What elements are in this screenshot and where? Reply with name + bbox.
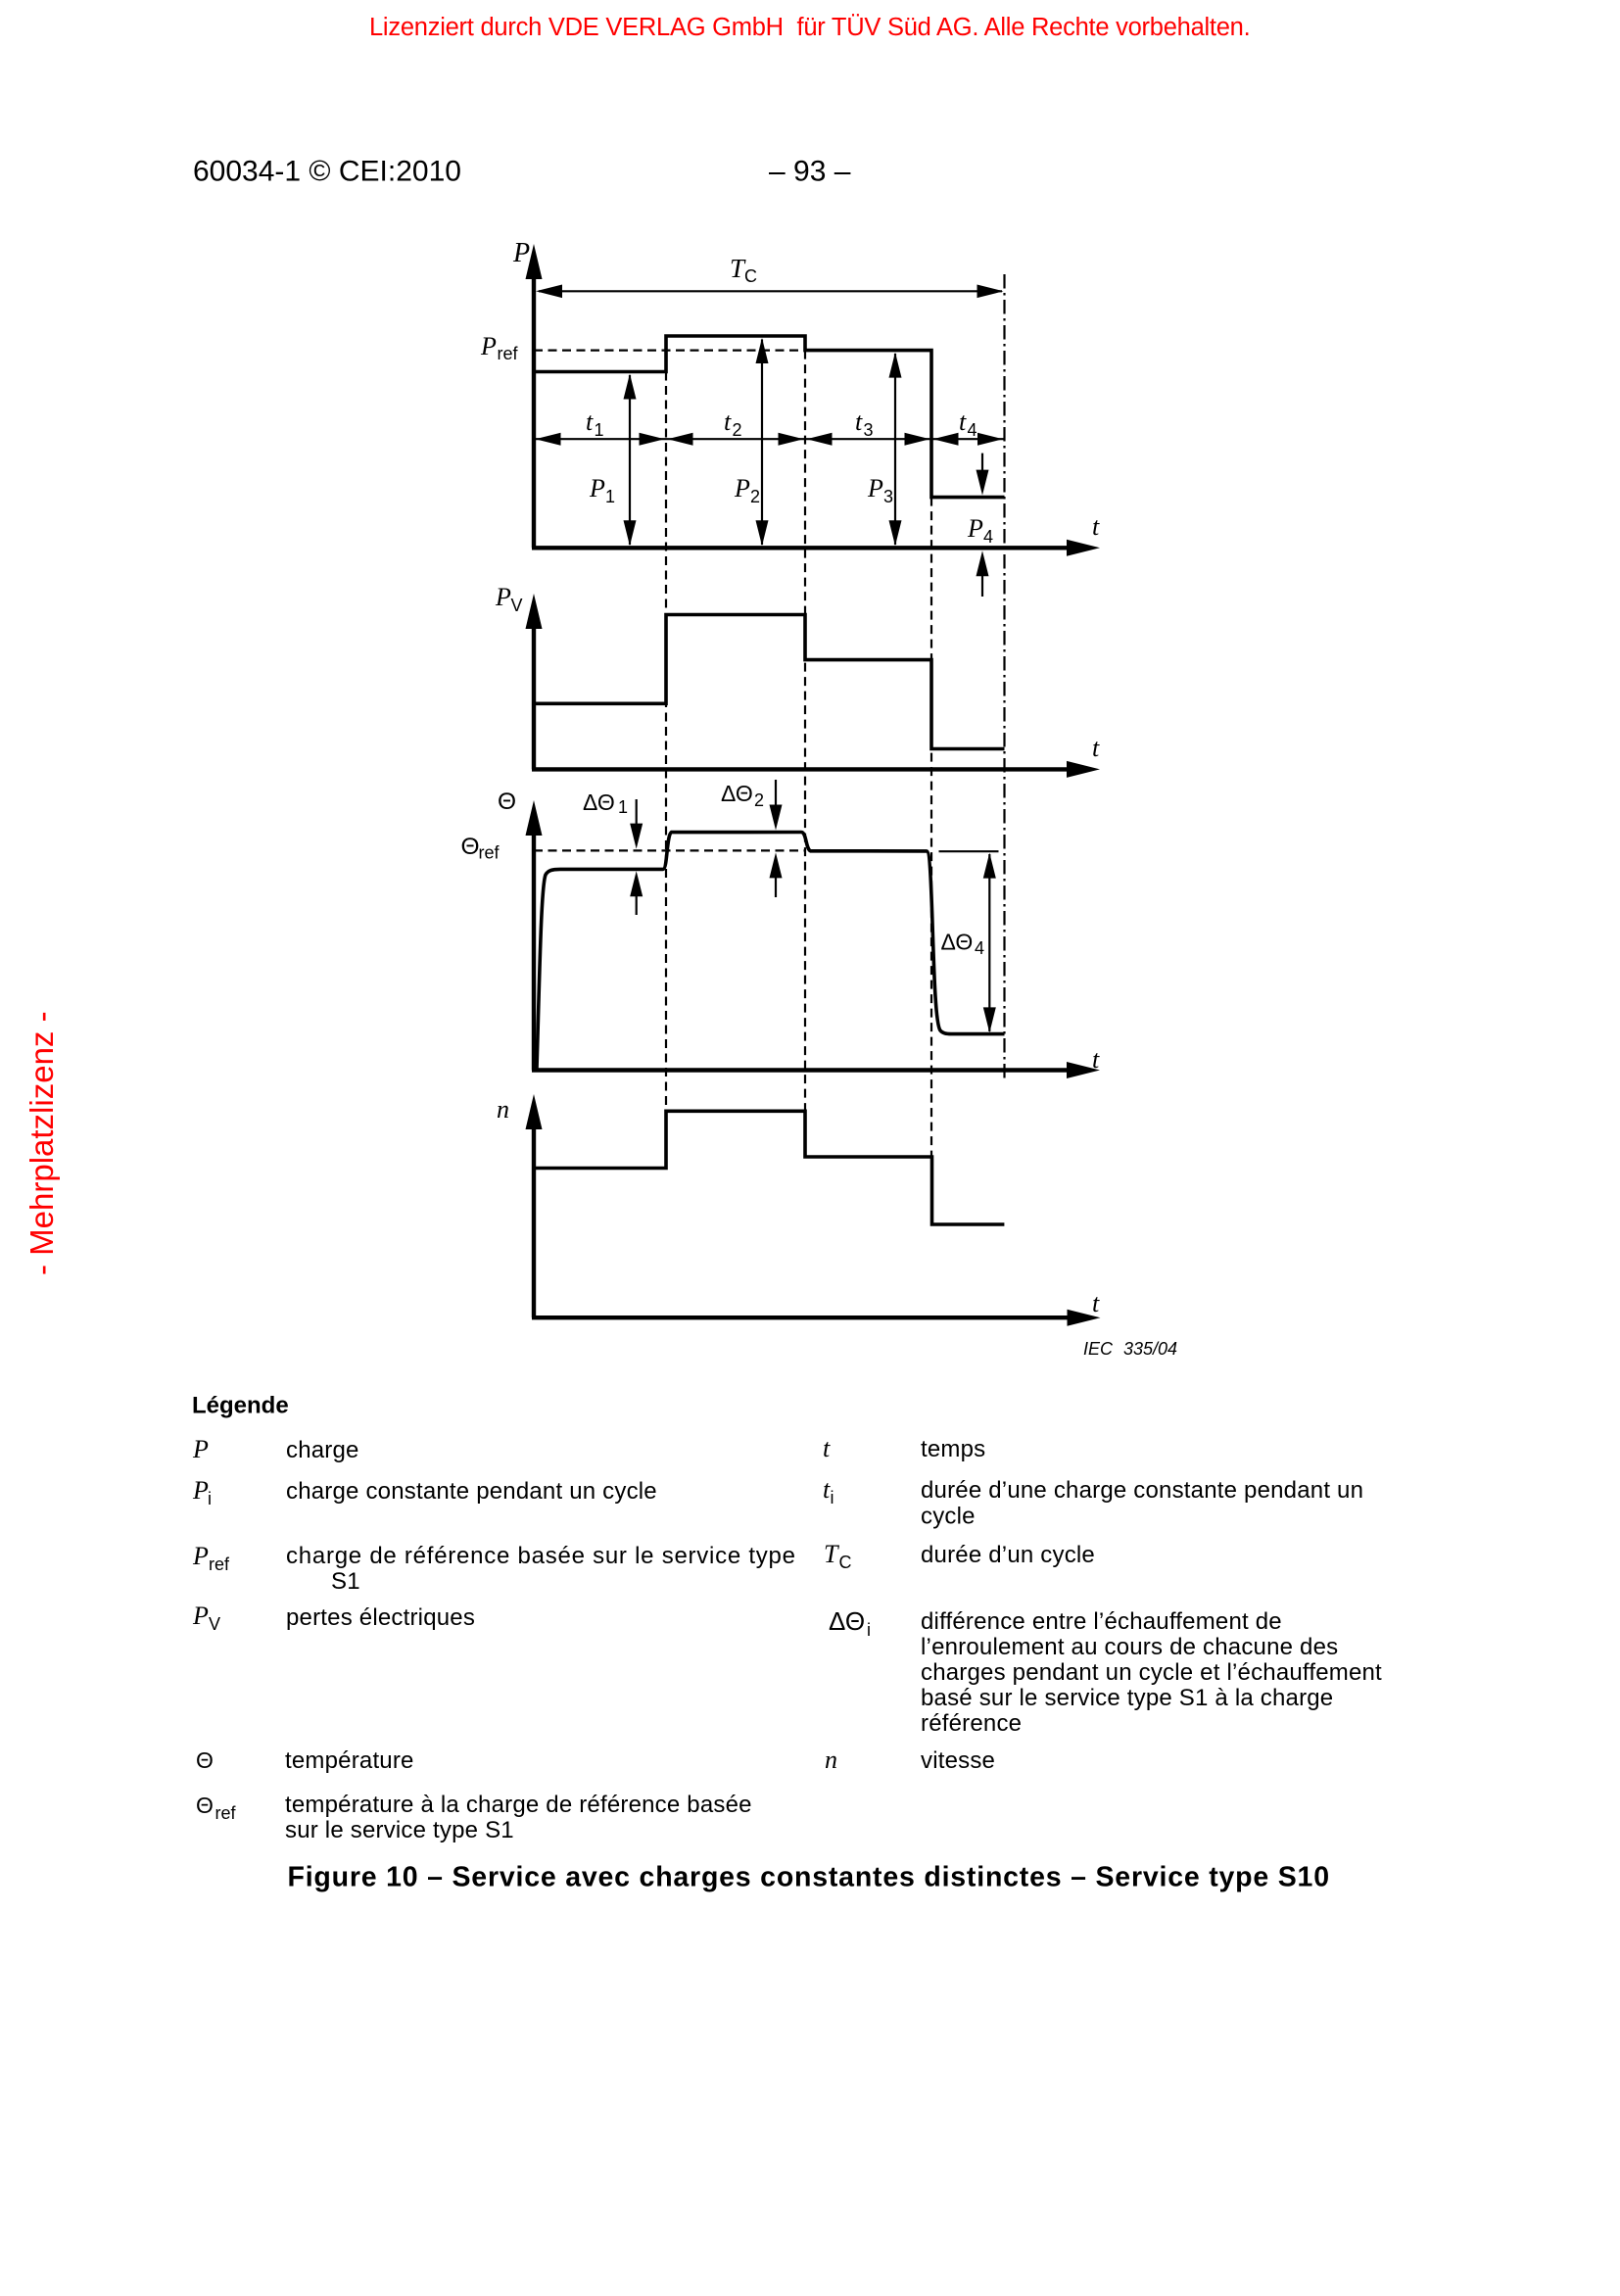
svg-text:1: 1 (618, 797, 628, 817)
svg-text:n: n (497, 1095, 509, 1124)
svg-text:sur le service type S1: sur le service type S1 (285, 1817, 514, 1843)
svg-text:durée d’une charge constante p: durée d’une charge constante pendant un (921, 1477, 1363, 1504)
svg-text:l’enroulement au cours de chac: l’enroulement au cours de chacune des (921, 1634, 1338, 1660)
svg-text:ΔΘ: ΔΘ (583, 789, 615, 815)
svg-text:Θ: Θ (196, 1747, 214, 1773)
svg-text:P: P (512, 238, 530, 268)
svg-text:Légende: Légende (192, 1393, 289, 1419)
svg-text:4: 4 (983, 527, 993, 547)
svg-text:ref: ref (215, 1803, 237, 1823)
svg-text:pertes électriques: pertes électriques (286, 1604, 475, 1631)
svg-text:t: t (586, 407, 594, 436)
svg-text:cycle: cycle (921, 1504, 976, 1530)
svg-text:4: 4 (968, 420, 977, 440)
svg-text:60034-1 © CEI:2010: 60034-1 © CEI:2010 (193, 156, 461, 188)
svg-text:3: 3 (864, 420, 874, 440)
svg-text:P: P (480, 332, 497, 360)
svg-text:T: T (824, 1540, 839, 1568)
svg-text:P: P (867, 474, 883, 502)
svg-text:P: P (495, 583, 511, 611)
svg-text:1: 1 (595, 420, 604, 440)
svg-text:i: i (831, 1488, 834, 1507)
svg-text:2: 2 (754, 790, 764, 810)
svg-text:2: 2 (733, 420, 742, 440)
svg-text:4: 4 (975, 938, 984, 958)
svg-text:vitesse: vitesse (921, 1747, 995, 1774)
svg-text:charge: charge (286, 1437, 359, 1463)
svg-text:différence entre l’échauffemen: différence entre l’échauffement de (921, 1608, 1282, 1635)
svg-text:S1: S1 (331, 1568, 360, 1595)
svg-text:temps: temps (921, 1436, 985, 1462)
svg-text:Figure 10 – Service avec charg: Figure 10 – Service avec charges constan… (288, 1862, 1330, 1893)
svg-text:t: t (959, 407, 967, 436)
svg-text:température: température (285, 1747, 414, 1774)
svg-text:t: t (724, 407, 732, 436)
svg-text:P: P (192, 1602, 209, 1630)
svg-text:1: 1 (605, 487, 615, 506)
svg-text:P: P (192, 1476, 209, 1505)
svg-text:i: i (867, 1620, 871, 1640)
svg-text:t: t (1092, 512, 1100, 541)
svg-text:i: i (208, 1489, 212, 1508)
svg-text:335/04: 335/04 (1123, 1339, 1177, 1359)
svg-text:température à la charge de réf: température à la charge de référence bas… (285, 1792, 752, 1818)
svg-text:basé sur le service type S1 à: basé sur le service type S1 à la charge (921, 1685, 1333, 1711)
svg-text:C: C (744, 266, 757, 286)
svg-text:t: t (1092, 734, 1100, 762)
svg-text:– 93 –: – 93 – (769, 156, 851, 188)
svg-text:P: P (589, 474, 605, 502)
svg-text:charge de référence basée sur: charge de référence basée sur le service… (286, 1543, 795, 1569)
svg-text:t: t (1092, 1045, 1100, 1074)
svg-text:ref: ref (479, 843, 500, 863)
svg-text:charges pendant un cycle et l’: charges pendant un cycle et l’échauffeme… (921, 1659, 1382, 1686)
svg-text:durée d’un cycle: durée d’un cycle (921, 1542, 1095, 1568)
svg-text:t: t (823, 1434, 831, 1462)
svg-text:référence: référence (921, 1710, 1022, 1737)
svg-text:P: P (192, 1435, 209, 1463)
svg-text:charge constante pendant un cy: charge constante pendant un cycle (286, 1478, 657, 1505)
svg-text:Θ: Θ (498, 789, 516, 815)
svg-text:ref: ref (209, 1555, 230, 1574)
svg-text:ref: ref (498, 344, 519, 363)
svg-text:3: 3 (883, 487, 893, 506)
svg-text:P: P (192, 1542, 209, 1570)
svg-text:ΔΘ: ΔΘ (721, 781, 753, 806)
svg-text:ΔΘ: ΔΘ (941, 930, 974, 955)
svg-text:Θ: Θ (196, 1793, 214, 1818)
svg-text:2: 2 (750, 487, 760, 506)
svg-text:V: V (209, 1614, 220, 1634)
svg-text:ΔΘ: ΔΘ (829, 1606, 865, 1636)
svg-text:t: t (855, 407, 863, 436)
svg-text:n: n (825, 1746, 837, 1774)
svg-text:V: V (511, 596, 523, 615)
svg-text:- Mehrplatzlizenz -: - Mehrplatzlizenz - (24, 1011, 60, 1275)
svg-text:P: P (967, 514, 983, 543)
svg-text:Lizenziert durch VDE VERLAG Gm: Lizenziert durch VDE VERLAG GmbH für TÜV… (369, 14, 1250, 41)
svg-text:C: C (839, 1553, 852, 1572)
svg-text:t: t (1092, 1289, 1100, 1317)
svg-text:Θ: Θ (461, 834, 480, 860)
svg-text:P: P (734, 474, 750, 502)
svg-text:IEC: IEC (1083, 1339, 1114, 1359)
